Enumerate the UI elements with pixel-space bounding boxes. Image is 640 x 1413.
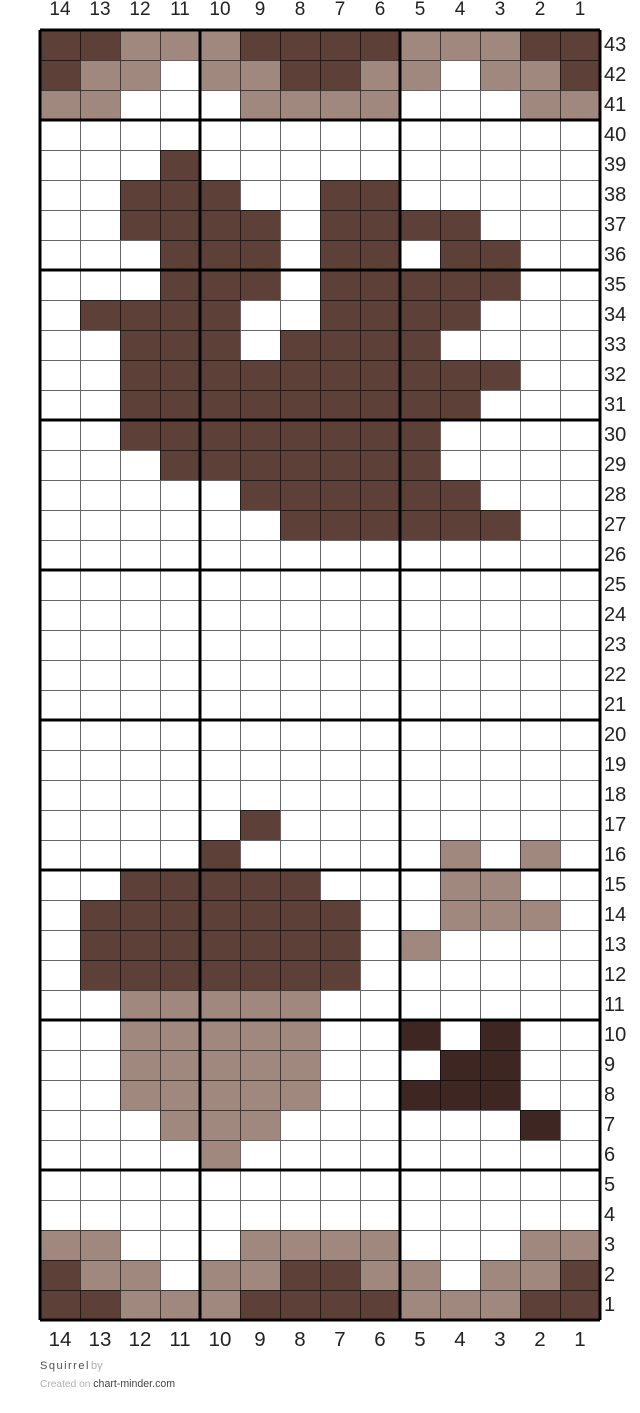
svg-text:40: 40 bbox=[604, 124, 626, 146]
svg-text:10: 10 bbox=[604, 1024, 626, 1046]
svg-text:13: 13 bbox=[89, 0, 110, 20]
svg-text:24: 24 bbox=[604, 604, 626, 626]
svg-text:18: 18 bbox=[604, 784, 626, 806]
svg-text:35: 35 bbox=[604, 274, 626, 296]
svg-text:5: 5 bbox=[415, 0, 426, 20]
svg-text:10: 10 bbox=[209, 0, 230, 20]
svg-text:39: 39 bbox=[604, 154, 626, 176]
svg-text:9: 9 bbox=[255, 0, 266, 20]
svg-text:2: 2 bbox=[534, 1328, 545, 1351]
svg-text:15: 15 bbox=[604, 874, 626, 896]
svg-text:8: 8 bbox=[604, 1084, 615, 1106]
svg-text:11: 11 bbox=[169, 1328, 190, 1351]
svg-text:22: 22 bbox=[604, 664, 626, 686]
svg-text:3: 3 bbox=[604, 1234, 615, 1256]
svg-text:14: 14 bbox=[604, 904, 626, 926]
svg-text:25: 25 bbox=[604, 574, 626, 596]
svg-text:2: 2 bbox=[604, 1264, 615, 1286]
svg-text:5: 5 bbox=[604, 1174, 615, 1196]
svg-text:38: 38 bbox=[604, 184, 626, 206]
svg-text:43: 43 bbox=[604, 34, 626, 56]
svg-text:7: 7 bbox=[604, 1114, 615, 1136]
svg-text:32: 32 bbox=[604, 364, 626, 386]
svg-text:10: 10 bbox=[209, 1328, 232, 1351]
svg-text:3: 3 bbox=[495, 0, 506, 20]
svg-text:7: 7 bbox=[335, 0, 346, 20]
svg-text:26: 26 bbox=[604, 544, 626, 566]
svg-text:31: 31 bbox=[604, 394, 626, 416]
svg-text:4: 4 bbox=[455, 0, 466, 20]
svg-text:33: 33 bbox=[604, 334, 626, 356]
svg-text:23: 23 bbox=[604, 634, 626, 656]
svg-text:21: 21 bbox=[604, 694, 626, 716]
svg-text:41: 41 bbox=[604, 94, 626, 116]
svg-text:1: 1 bbox=[574, 1328, 585, 1351]
svg-text:Created on chart-minder.com: Created on chart-minder.com bbox=[40, 1378, 175, 1390]
svg-text:13: 13 bbox=[89, 1328, 112, 1351]
svg-text:20: 20 bbox=[604, 724, 626, 746]
svg-text:1: 1 bbox=[575, 0, 586, 20]
svg-text:4: 4 bbox=[604, 1204, 615, 1226]
svg-text:28: 28 bbox=[604, 484, 626, 506]
svg-text:6: 6 bbox=[374, 1328, 385, 1351]
svg-text:7: 7 bbox=[334, 1328, 345, 1351]
svg-text:13: 13 bbox=[604, 934, 626, 956]
svg-text:8: 8 bbox=[294, 1328, 305, 1351]
svg-text:12: 12 bbox=[129, 1328, 152, 1351]
svg-text:19: 19 bbox=[604, 754, 626, 776]
svg-text:17: 17 bbox=[604, 814, 626, 836]
svg-text:6: 6 bbox=[375, 0, 386, 20]
svg-text:2: 2 bbox=[535, 0, 546, 20]
svg-text:42: 42 bbox=[604, 64, 626, 86]
svg-text:30: 30 bbox=[604, 424, 626, 446]
svg-text:14: 14 bbox=[49, 0, 71, 20]
svg-text:Squirrel by: Squirrel by bbox=[40, 1360, 103, 1372]
svg-text:1: 1 bbox=[604, 1294, 615, 1316]
svg-text:8: 8 bbox=[295, 0, 306, 20]
svg-text:3: 3 bbox=[494, 1328, 505, 1351]
svg-text:14: 14 bbox=[49, 1328, 72, 1351]
svg-text:34: 34 bbox=[604, 304, 626, 326]
svg-text:5: 5 bbox=[414, 1328, 425, 1351]
svg-text:11: 11 bbox=[604, 994, 625, 1016]
svg-text:36: 36 bbox=[604, 244, 626, 266]
svg-text:37: 37 bbox=[604, 214, 626, 236]
svg-text:12: 12 bbox=[129, 0, 150, 20]
svg-text:12: 12 bbox=[604, 964, 626, 986]
svg-text:11: 11 bbox=[170, 0, 190, 20]
svg-text:16: 16 bbox=[604, 844, 626, 866]
svg-text:4: 4 bbox=[454, 1328, 465, 1351]
svg-text:29: 29 bbox=[604, 454, 626, 476]
svg-text:9: 9 bbox=[254, 1328, 265, 1351]
svg-text:9: 9 bbox=[604, 1054, 615, 1076]
svg-text:6: 6 bbox=[604, 1144, 615, 1166]
svg-text:27: 27 bbox=[604, 514, 626, 536]
